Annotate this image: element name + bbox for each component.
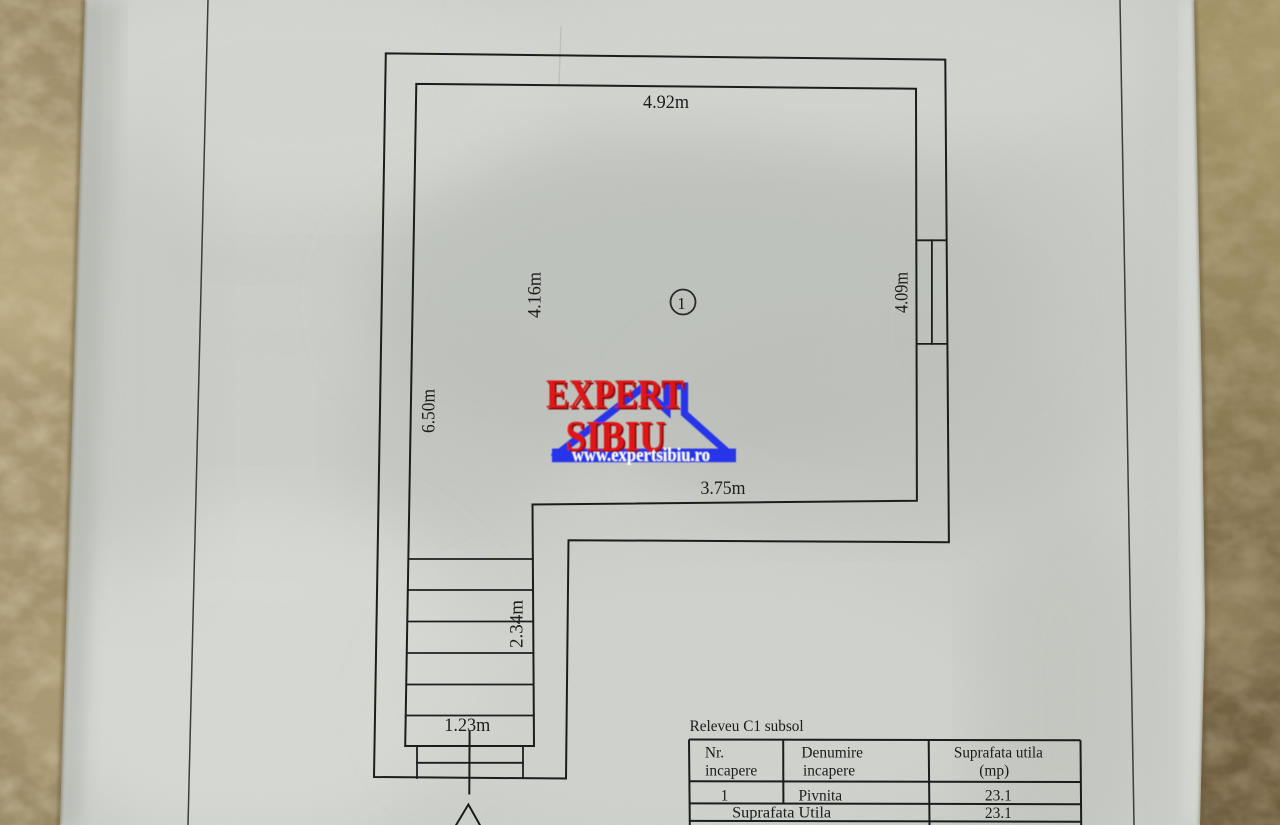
svg-text:incapere: incapere <box>803 763 855 780</box>
svg-text:Pivnita: Pivnita <box>798 787 842 804</box>
svg-text:23.1: 23.1 <box>985 805 1012 822</box>
svg-text:Suprafata utila: Suprafata utila <box>954 745 1043 762</box>
svg-text:incapere: incapere <box>705 763 757 780</box>
svg-text:1.23m: 1.23m <box>444 716 491 736</box>
svg-text:1: 1 <box>721 787 729 804</box>
svg-text:23.1: 23.1 <box>985 787 1012 804</box>
svg-text:6.50m: 6.50m <box>420 388 440 433</box>
svg-text:3.75m: 3.75m <box>701 479 747 499</box>
svg-text:1: 1 <box>677 294 686 313</box>
svg-text:4.92m: 4.92m <box>643 93 690 113</box>
svg-text:Suprafata Utila: Suprafata Utila <box>732 805 831 822</box>
svg-text:www.expertsibiu.ro: www.expertsibiu.ro <box>572 445 710 466</box>
svg-text:(mp): (mp) <box>979 763 1009 780</box>
svg-text:2.34m: 2.34m <box>508 599 528 648</box>
svg-text:Releveu C1 subsol: Releveu C1 subsol <box>690 718 804 735</box>
svg-text:4.09m: 4.09m <box>893 271 913 313</box>
svg-text:Nr.: Nr. <box>705 745 724 762</box>
svg-text:EXPERT: EXPERT <box>546 371 684 417</box>
svg-text:Denumire: Denumire <box>801 745 863 762</box>
svg-text:4.16m: 4.16m <box>526 271 546 318</box>
